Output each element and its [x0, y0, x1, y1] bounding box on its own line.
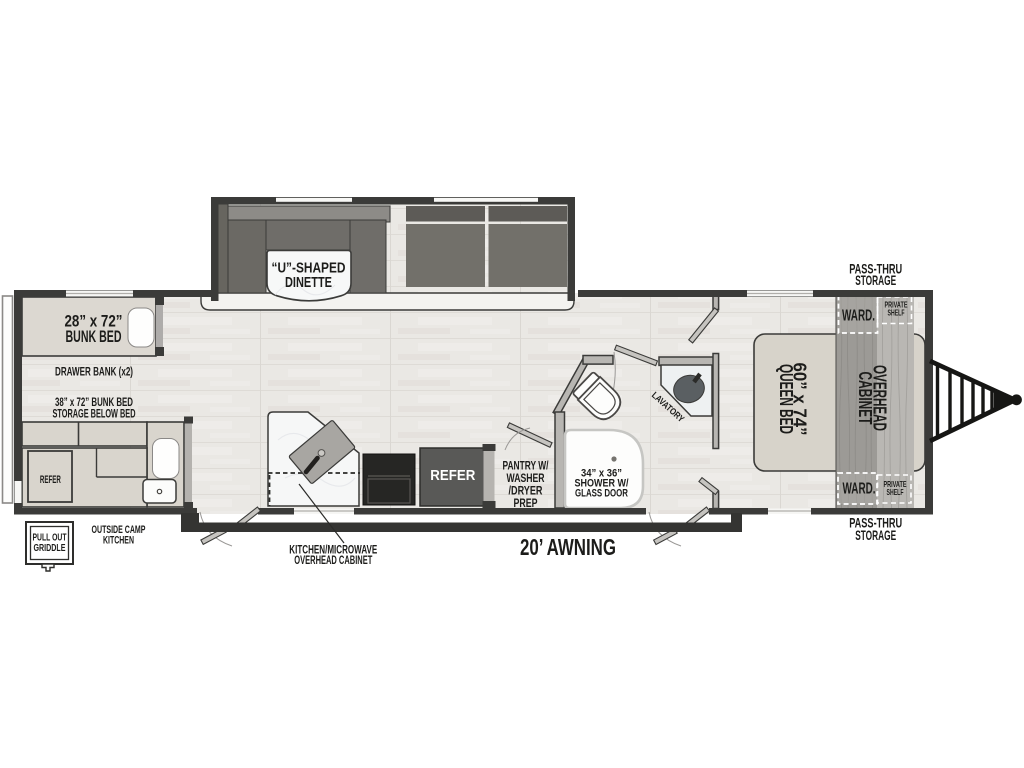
- svg-text:WARD.: WARD.: [843, 481, 876, 498]
- svg-text:OVERHEAD CABINET: OVERHEAD CABINET: [294, 553, 372, 567]
- svg-text:SHELF: SHELF: [887, 487, 904, 497]
- svg-text:WARD.: WARD.: [842, 308, 875, 325]
- svg-text:REFER: REFER: [40, 474, 61, 486]
- svg-text:SHELF: SHELF: [888, 307, 905, 317]
- svg-text:WASHER: WASHER: [507, 473, 546, 485]
- svg-text:GRIDDLE: GRIDDLE: [34, 543, 66, 554]
- svg-text:DINETTE: DINETTE: [285, 274, 332, 291]
- svg-text:KITCHEN: KITCHEN: [103, 535, 134, 547]
- svg-text:BUNK BED: BUNK BED: [66, 328, 122, 346]
- svg-text:DRAWER BANK (x2): DRAWER BANK (x2): [55, 364, 133, 378]
- svg-text:/DRYER: /DRYER: [509, 485, 544, 497]
- svg-text:PANTRY W/: PANTRY W/: [503, 460, 550, 472]
- svg-text:20’ AWNING: 20’ AWNING: [520, 534, 616, 560]
- svg-text:QUEEN BED: QUEEN BED: [776, 364, 796, 434]
- svg-text:STORAGE: STORAGE: [855, 273, 896, 288]
- svg-text:CABINET: CABINET: [855, 372, 875, 425]
- svg-text:STORAGE: STORAGE: [855, 528, 896, 543]
- svg-text:REFER: REFER: [430, 468, 475, 484]
- svg-text:STORAGE BELOW BED: STORAGE BELOW BED: [53, 407, 136, 421]
- svg-text:GLASS DOOR: GLASS DOOR: [575, 487, 628, 499]
- svg-text:PULL OUT: PULL OUT: [33, 533, 67, 544]
